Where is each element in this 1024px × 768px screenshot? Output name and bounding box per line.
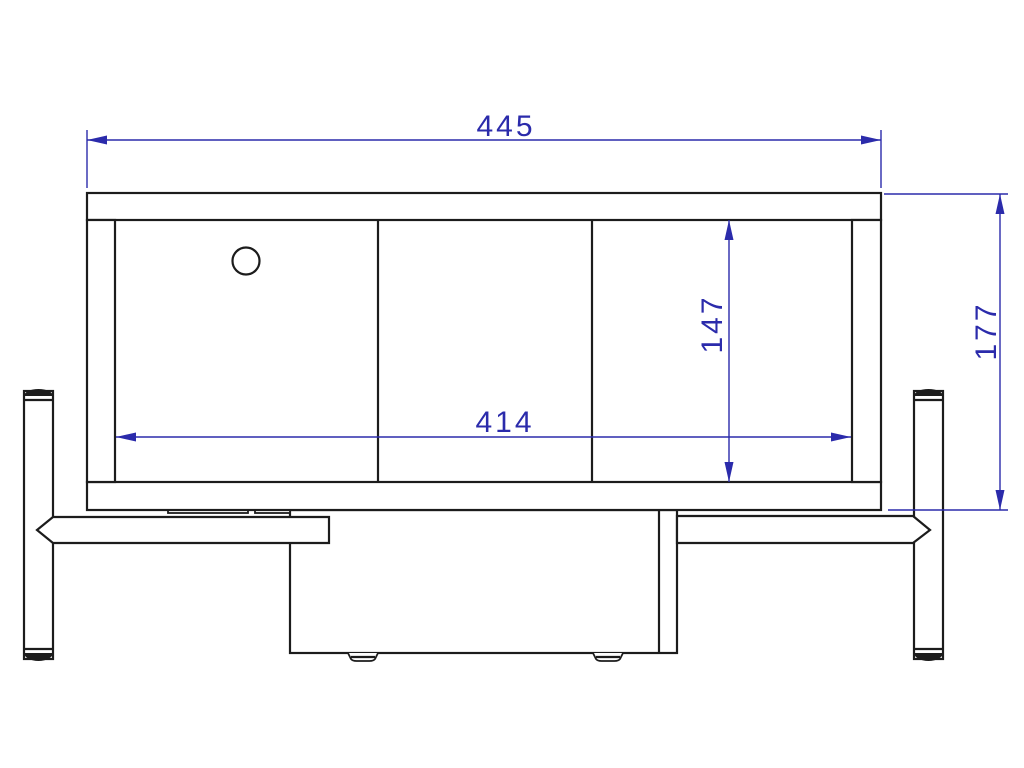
dim-inner-width-label: 414 (475, 406, 534, 439)
dim-overall-height: 177 (884, 194, 1008, 510)
dim-inner-height-label: 147 (696, 294, 729, 353)
arrowhead-left (87, 136, 107, 145)
arrowhead-up (996, 194, 1005, 214)
drawer-foot-left (348, 653, 378, 661)
technical-drawing-canvas: 445 414 147 177 (0, 0, 1024, 768)
dim-inner-width: 414 (116, 406, 851, 442)
left-support-arm (37, 517, 329, 543)
right-support-arm (677, 516, 930, 543)
arrowhead-down (996, 490, 1005, 510)
arrowhead-left (116, 433, 136, 442)
center-drawer-box (290, 510, 677, 661)
cabinet-right-side-panel (852, 220, 881, 482)
dim-inner-height: 147 (696, 220, 734, 482)
arrowhead-up (725, 220, 734, 240)
cabinet-left-side-panel (87, 220, 115, 482)
dim-overall-width-label: 445 (476, 110, 535, 143)
arrowhead-right (861, 136, 881, 145)
cabinet-body (87, 193, 881, 510)
dim-overall-width: 445 (87, 110, 881, 188)
cabinet-bottom-panel (87, 482, 881, 510)
arrowhead-down (725, 462, 734, 482)
dim-overall-height-label: 177 (970, 301, 1003, 360)
arrowhead-right (831, 433, 851, 442)
cable-hole (233, 248, 260, 275)
drawer-box-body (290, 510, 677, 653)
drawer-foot-right (593, 653, 623, 661)
furniture-dimension-drawing: 445 414 147 177 (0, 0, 1024, 768)
cabinet-top-panel (87, 193, 881, 220)
